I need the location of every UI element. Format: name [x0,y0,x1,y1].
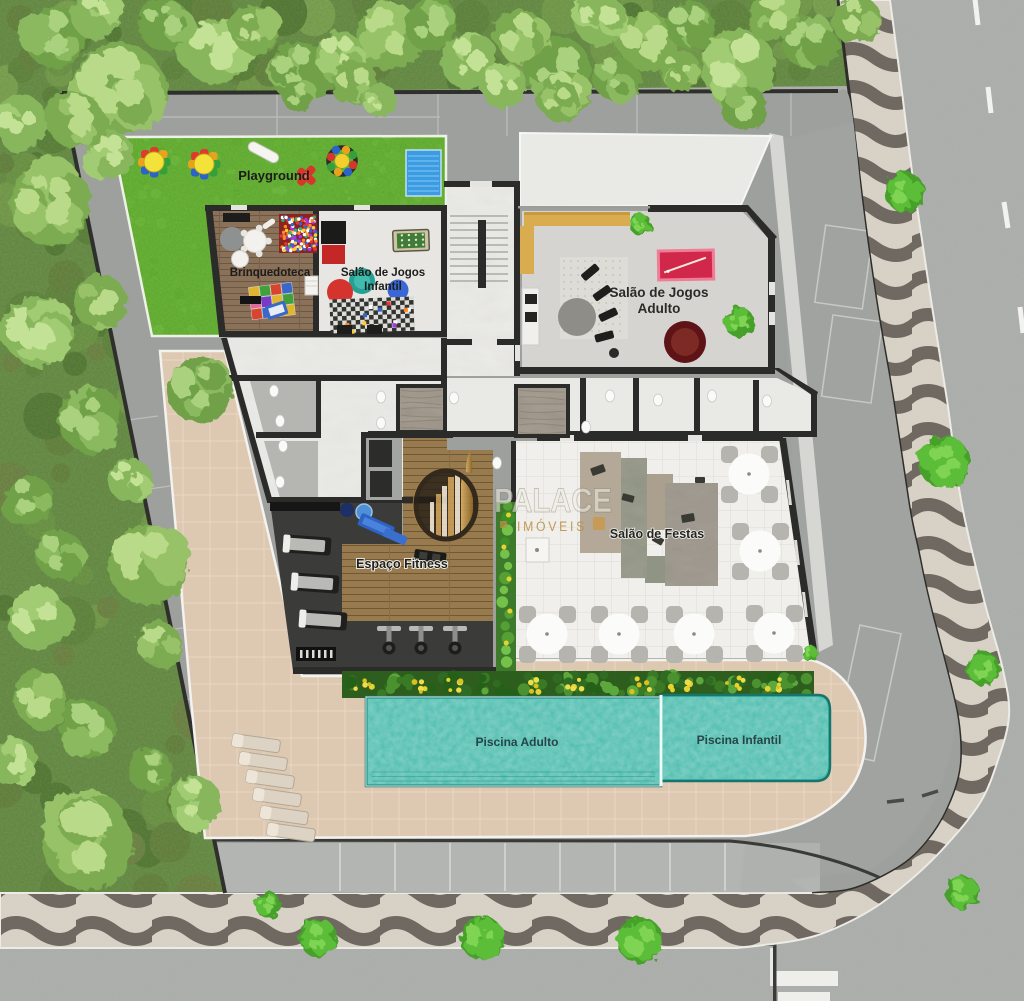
svg-text:Salão de Festas: Salão de Festas [610,527,705,541]
svg-text:Brinquedoteca: Brinquedoteca [230,267,311,279]
svg-text:Infantil: Infantil [364,281,402,293]
svg-text:Adulto: Adulto [638,301,681,316]
svg-text:Salão de Jogos: Salão de Jogos [341,267,425,279]
svg-text:Espaço Fitness: Espaço Fitness [356,557,448,571]
svg-text:Piscina Infantil: Piscina Infantil [697,733,782,747]
svg-text:Piscina Adulto: Piscina Adulto [476,735,559,749]
svg-text:Playground: Playground [238,168,310,183]
svg-text:Salão de Jogos: Salão de Jogos [609,285,708,300]
svg-text:PALACE: PALACE [494,482,612,520]
svg-text:IMÓVEIS: IMÓVEIS [517,519,587,534]
